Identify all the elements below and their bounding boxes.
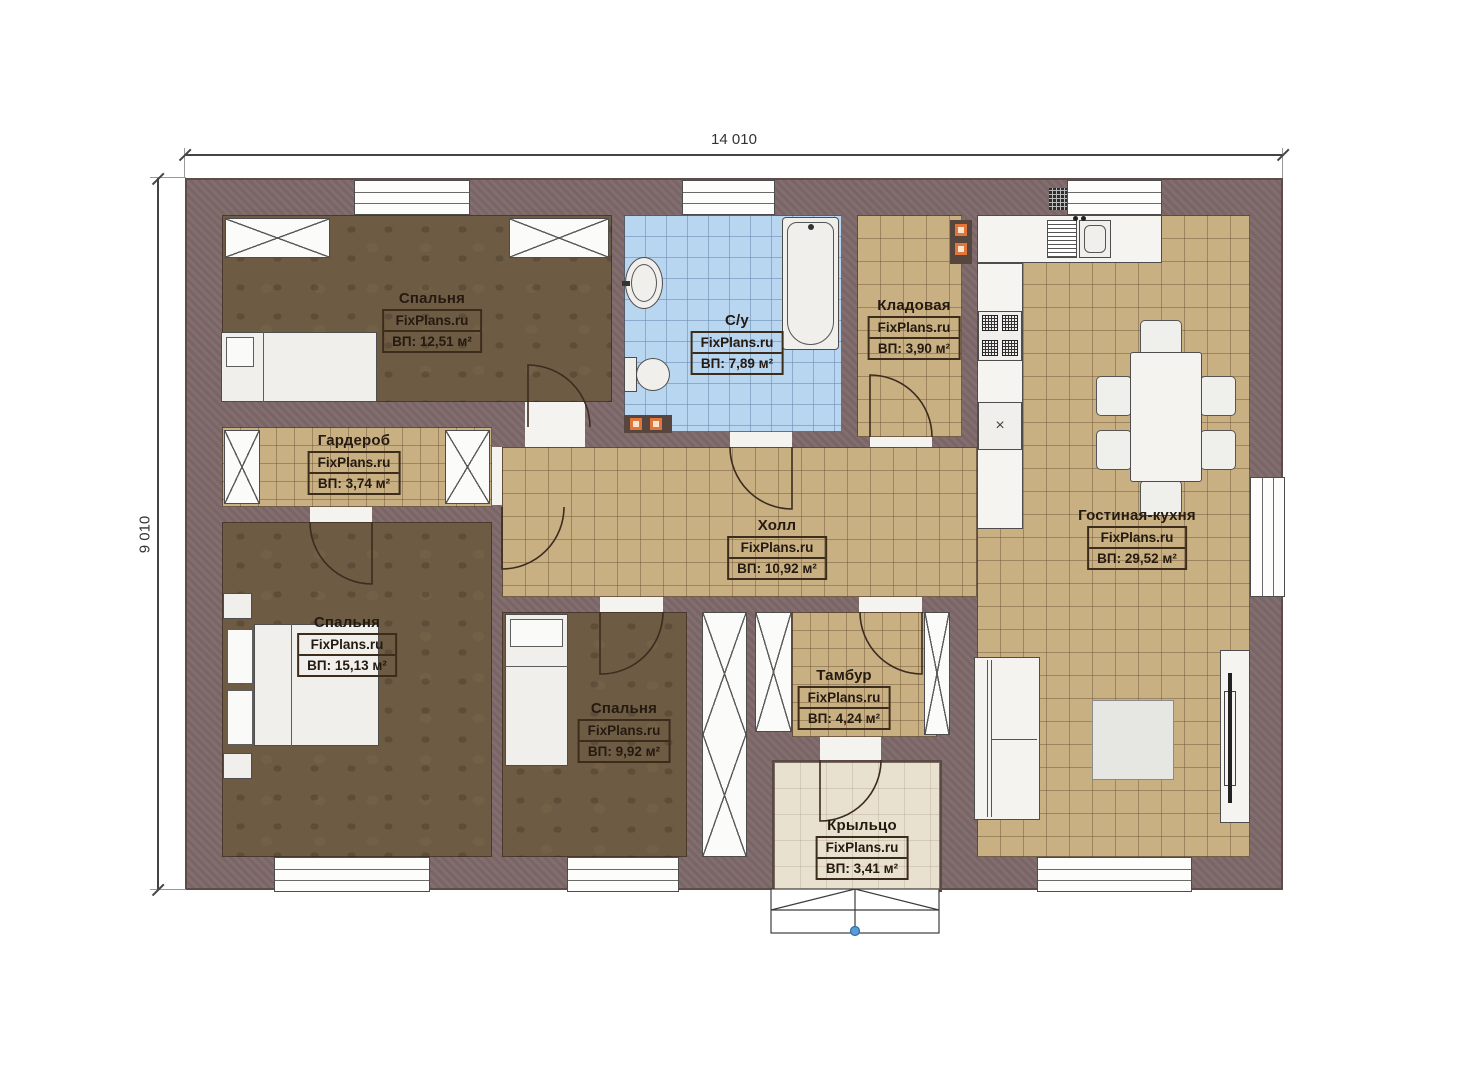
watermark: FixPlans.ru [299, 635, 395, 656]
window-frame-line [275, 869, 429, 870]
window-frame-line [355, 192, 469, 193]
toilet-bowl [636, 358, 670, 391]
watermark: FixPlans.ru [384, 311, 480, 332]
dimension-height-label: 9 010 [137, 495, 154, 575]
closet [225, 218, 330, 258]
dining-chair [1200, 430, 1236, 470]
window-frame-line [568, 880, 678, 881]
blanket-line [263, 332, 264, 402]
room-area: ВП: 3,74 м² [310, 474, 399, 493]
room-name: Крыльцо [816, 817, 909, 834]
kitchen-counter-side [977, 263, 1023, 529]
room-info-box: FixPlans.ru ВП: 3,90 м² [868, 316, 961, 360]
room-area: ВП: 3,90 м² [870, 339, 959, 358]
room-info-box: FixPlans.ru ВП: 7,89 м² [691, 331, 784, 375]
kitchen-sink-drainer [1047, 220, 1077, 258]
room-info-box: FixPlans.ru ВП: 29,52 м² [1087, 526, 1187, 570]
stove-burner [982, 315, 998, 331]
room-info-box: FixPlans.ru ВП: 9,92 м² [578, 719, 671, 763]
pillow [226, 337, 254, 367]
watermark: FixPlans.ru [580, 721, 669, 742]
door-opening [600, 597, 663, 612]
door-opening [492, 447, 502, 505]
dimension-width-label: 14 010 [185, 131, 1283, 148]
kitchen-faucet [1081, 216, 1086, 221]
boiler-indicator [955, 243, 967, 255]
closet [755, 612, 792, 732]
tv-stand [1220, 650, 1250, 823]
room-label-bedroom-3: Спальня FixPlans.ru ВП: 9,92 м² [578, 700, 671, 763]
window [682, 180, 775, 215]
room-info-box: FixPlans.ru ВП: 3,74 м² [308, 451, 401, 495]
pillow [510, 619, 563, 647]
room-name: Спальня [297, 614, 397, 631]
porch-steps [770, 888, 940, 938]
dining-table [1130, 352, 1202, 482]
watermark: FixPlans.ru [693, 333, 782, 354]
room-label-wardrobe: Гардероб FixPlans.ru ВП: 3,74 м² [308, 432, 401, 495]
room-name: Холл [727, 517, 827, 534]
door-opening [730, 432, 792, 447]
closet-tall [702, 612, 747, 857]
dining-chair [1096, 376, 1132, 416]
room-info-box: FixPlans.ru ВП: 3,41 м² [816, 836, 909, 880]
dimension-line-top [185, 154, 1283, 156]
room-label-storage: Кладовая FixPlans.ru ВП: 3,90 м² [868, 297, 961, 360]
washer-indicator [650, 418, 662, 430]
blanket-line [505, 666, 568, 667]
window-frame-line [1038, 869, 1191, 870]
closet [224, 430, 260, 504]
room-info-box: FixPlans.ru ВП: 4,24 м² [798, 686, 891, 730]
door-opening [820, 737, 881, 760]
sink-basin [631, 264, 657, 302]
room-label-living-kitchen: Гостиная-кухня FixPlans.ru ВП: 29,52 м² [1078, 507, 1196, 570]
kitchen-sink-basin [1079, 220, 1111, 258]
tv-screen [1228, 673, 1232, 803]
room-name: Спальня [382, 290, 482, 307]
sink-faucet [622, 281, 630, 286]
window-frame-line [568, 869, 678, 870]
step-diagonal [771, 889, 855, 910]
sofa [974, 657, 1040, 820]
pillow [227, 629, 253, 684]
room-label-tambour: Тамбур FixPlans.ru ВП: 4,24 м² [798, 667, 891, 730]
closet [509, 218, 609, 258]
pillow [227, 690, 253, 745]
kitchen-sink-inner [1084, 225, 1106, 253]
door-opening [870, 437, 932, 447]
coffee-table [1092, 700, 1174, 780]
door-opening [310, 507, 372, 522]
bathtub [782, 217, 839, 350]
room-area: ВП: 15,13 м² [299, 656, 395, 675]
room-name: С/у [691, 312, 784, 329]
room-name: Спальня [578, 700, 671, 717]
dimension-line-left [157, 178, 159, 890]
window-frame-line [1068, 192, 1161, 193]
room-name: Кладовая [868, 297, 961, 314]
room-label-porch: Крыльцо FixPlans.ru ВП: 3,41 м² [816, 817, 909, 880]
room-info-box: FixPlans.ru ВП: 10,92 м² [727, 536, 827, 580]
window [354, 180, 470, 215]
room-area: ВП: 7,89 м² [693, 354, 782, 373]
window-frame-line [275, 880, 429, 881]
room-label-bathroom: С/у FixPlans.ru ВП: 7,89 м² [691, 312, 784, 375]
washer-indicator [630, 418, 642, 430]
room-area: ВП: 3,41 м² [818, 859, 907, 878]
stove-burner [982, 340, 998, 356]
building-outline: × [185, 178, 1283, 890]
bathtub-faucet [808, 224, 814, 230]
bathtub-inner [787, 222, 834, 345]
dining-chair [1096, 430, 1132, 470]
room-label-bedroom-2: Спальня FixPlans.ru ВП: 15,13 м² [297, 614, 397, 677]
step-diagonal [855, 889, 939, 910]
entry-point-marker [851, 927, 860, 936]
watermark: FixPlans.ru [870, 318, 959, 339]
room-info-box: FixPlans.ru ВП: 15,13 м² [297, 633, 397, 677]
boiler-indicator [955, 224, 967, 236]
stove-burner [1002, 340, 1018, 356]
closet [445, 430, 490, 504]
window [1037, 857, 1192, 892]
dining-chair [1200, 376, 1236, 416]
room-name: Гардероб [308, 432, 401, 449]
blanket-line [291, 624, 292, 746]
window [1250, 477, 1285, 597]
room-area: ВП: 29,52 м² [1089, 549, 1185, 568]
room-name: Гостиная-кухня [1078, 507, 1196, 524]
closet [924, 612, 950, 735]
window [567, 857, 679, 892]
window-frame-line [1273, 478, 1274, 596]
room-area: ВП: 4,24 м² [800, 709, 889, 728]
window [1067, 180, 1162, 215]
room-name: Тамбур [798, 667, 891, 684]
watermark: FixPlans.ru [310, 453, 399, 474]
room-area: ВП: 10,92 м² [729, 559, 825, 578]
window-frame-line [683, 192, 774, 193]
door-opening [859, 597, 922, 612]
stove-burner [1002, 315, 1018, 331]
steps-outline [771, 889, 939, 933]
dimension-extension [150, 177, 186, 178]
watermark: FixPlans.ru [800, 688, 889, 709]
window-frame-line [683, 203, 774, 204]
bathroom-sink [625, 257, 663, 309]
stove [978, 311, 1022, 361]
room-label-hall: Холл FixPlans.ru ВП: 10,92 м² [727, 517, 827, 580]
room-label-bedroom-1: Спальня FixPlans.ru ВП: 12,51 м² [382, 290, 482, 353]
sofa-cushion-line [992, 739, 1037, 740]
watermark: FixPlans.ru [1089, 528, 1185, 549]
dining-chair [1140, 320, 1182, 356]
dishwasher: × [978, 402, 1022, 450]
window [274, 857, 430, 892]
door-opening [525, 402, 585, 447]
room-area: ВП: 12,51 м² [384, 332, 480, 351]
nightstand [223, 753, 252, 779]
watermark: FixPlans.ru [729, 538, 825, 559]
window-frame-line [1038, 880, 1191, 881]
room-info-box: FixPlans.ru ВП: 12,51 м² [382, 309, 482, 353]
kitchen-faucet [1073, 216, 1078, 221]
window-frame-line [1262, 478, 1263, 596]
window-frame-line [1068, 203, 1161, 204]
nightstand [223, 593, 252, 619]
watermark: FixPlans.ru [818, 838, 907, 859]
floorplan-canvas: 14 010 9 010 [0, 0, 1473, 1080]
room-area: ВП: 9,92 м² [580, 742, 669, 761]
window-frame-line [355, 203, 469, 204]
